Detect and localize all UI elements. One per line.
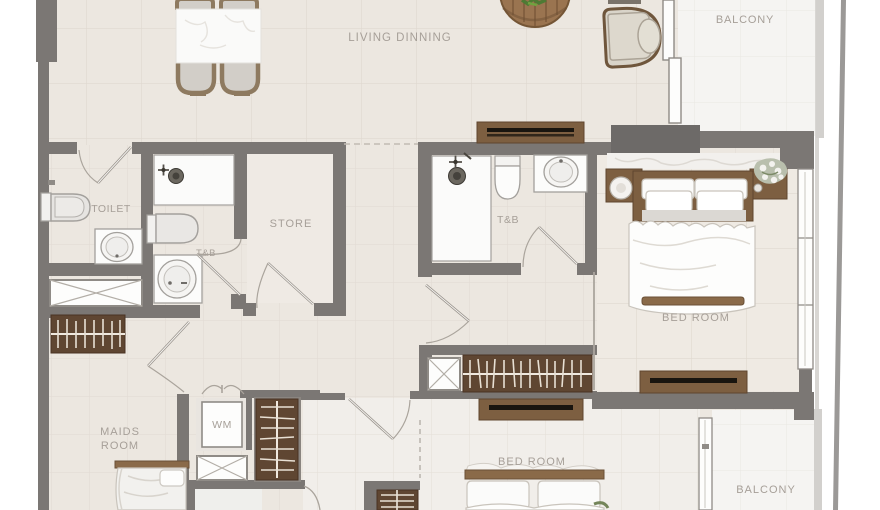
svg-text:BED ROOM: BED ROOM [662, 312, 730, 324]
svg-text:LIVING DINNING: LIVING DINNING [348, 32, 451, 44]
svg-text:BED ROOM: BED ROOM [498, 456, 566, 468]
svg-text:TOILET: TOILET [91, 203, 131, 215]
svg-text:T&B: T&B [196, 248, 216, 259]
svg-text:MAIDS: MAIDS [100, 426, 140, 438]
svg-text:STORE: STORE [270, 218, 313, 230]
svg-text:ROOM: ROOM [101, 440, 139, 452]
svg-text:T&B: T&B [497, 214, 519, 226]
svg-text:BALCONY: BALCONY [736, 484, 796, 496]
svg-text:WM: WM [212, 419, 232, 431]
svg-text:BALCONY: BALCONY [716, 14, 774, 26]
